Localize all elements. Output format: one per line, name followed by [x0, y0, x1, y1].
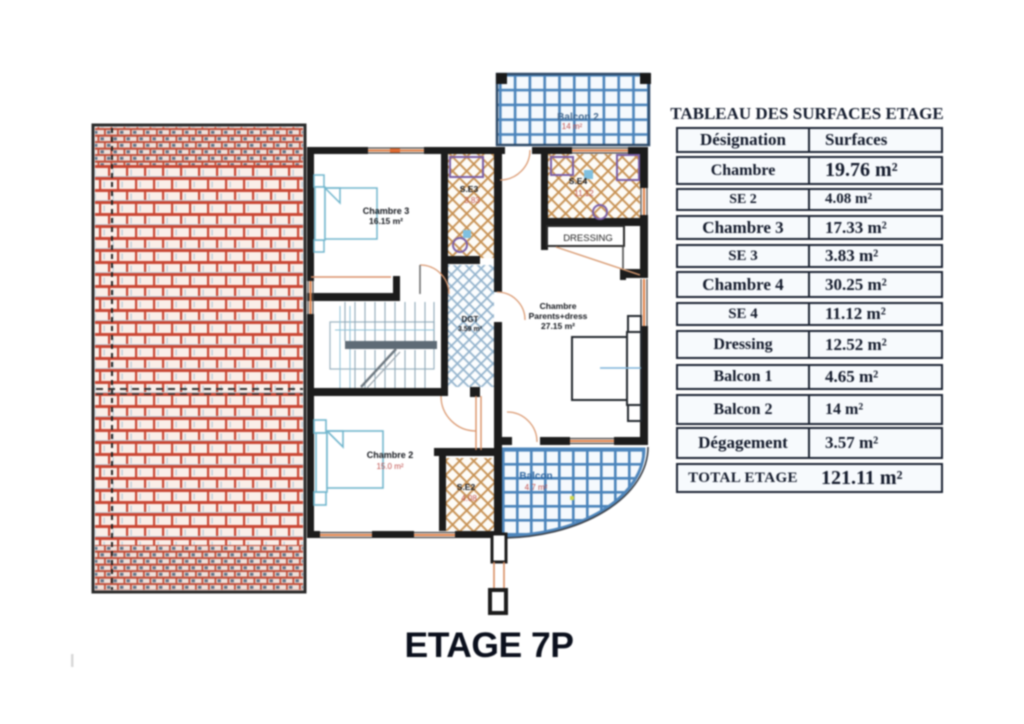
svg-text:S.E3: S.E3 — [460, 184, 479, 194]
svg-text:16.15 m²: 16.15 m² — [369, 216, 403, 226]
svg-text:S.E2: S.E2 — [457, 482, 476, 492]
svg-text:4.08: 4.08 — [461, 494, 477, 503]
svg-text:3.83: 3.83 — [464, 196, 480, 205]
svg-text:Parents+dress: Parents+dress — [529, 311, 588, 321]
svg-text:15.0 m²: 15.0 m² — [376, 462, 403, 471]
svg-text:14 m²: 14 m² — [562, 122, 583, 131]
svg-text:27.15 m²: 27.15 m² — [541, 321, 575, 331]
svg-text:3.59 m²: 3.59 m² — [458, 326, 483, 333]
svg-text:11.12: 11.12 — [574, 189, 594, 198]
svg-text:Balcon: Balcon — [519, 471, 552, 482]
svg-text:Chambre 3: Chambre 3 — [363, 206, 410, 216]
svg-text:S.E4: S.E4 — [569, 176, 588, 186]
svg-text:4.7 m²: 4.7 m² — [525, 483, 548, 492]
svg-text:Chambre: Chambre — [540, 301, 577, 311]
svg-text:Chambre 2: Chambre 2 — [367, 450, 414, 460]
svg-text:DRESSING: DRESSING — [563, 233, 613, 244]
svg-text:DGT: DGT — [462, 315, 479, 324]
